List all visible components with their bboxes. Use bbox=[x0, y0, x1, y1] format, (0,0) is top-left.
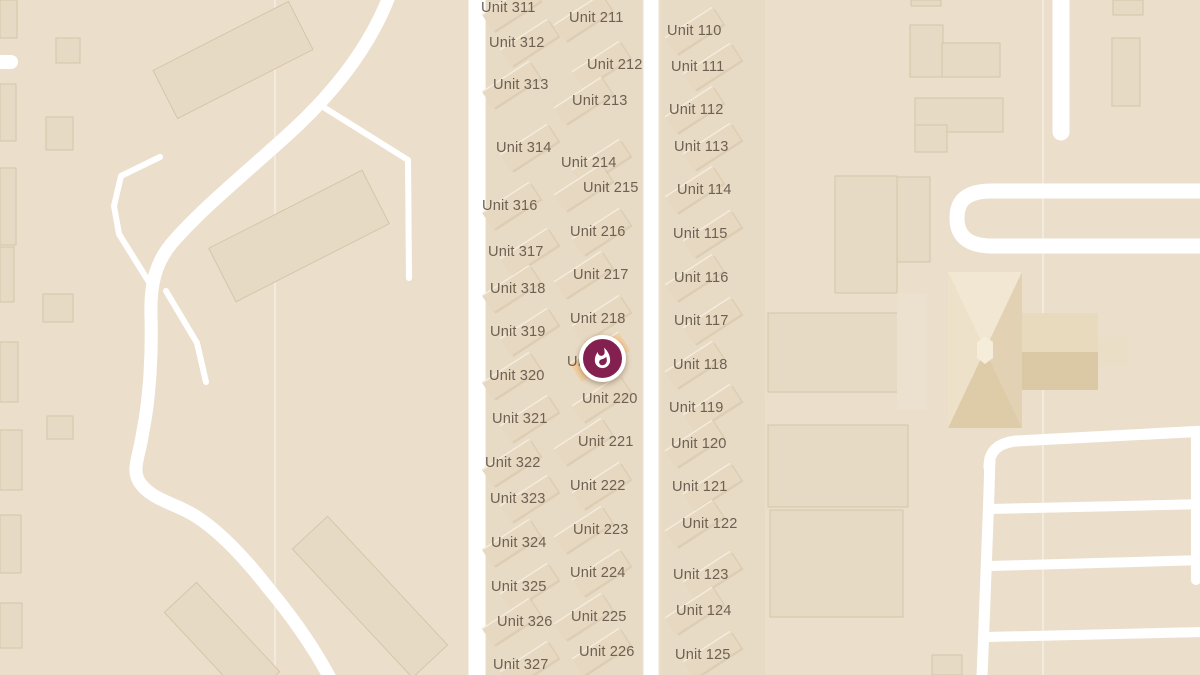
unit-label: Unit 118 bbox=[673, 357, 727, 373]
unit-label: Unit 121 bbox=[672, 479, 728, 495]
unit-label: Unit 224 bbox=[570, 565, 626, 581]
unit-label: Unit 115 bbox=[673, 226, 727, 242]
fire-marker[interactable] bbox=[579, 335, 626, 382]
unit-label: Unit 226 bbox=[579, 644, 635, 660]
unit-label: Unit 112 bbox=[669, 102, 723, 118]
unit-label: Unit 225 bbox=[571, 609, 627, 625]
unit-label: Unit 318 bbox=[490, 281, 546, 297]
unit-label: Unit 223 bbox=[573, 522, 629, 538]
unit-label: Unit 116 bbox=[674, 270, 728, 286]
unit-label: Unit 317 bbox=[488, 244, 544, 260]
unit-label: Unit 323 bbox=[490, 491, 546, 507]
unit-label: Unit 124 bbox=[676, 603, 732, 619]
unit-label: Unit 123 bbox=[673, 567, 729, 583]
unit-label: Unit 119 bbox=[669, 400, 723, 416]
unit-label: Unit 220 bbox=[582, 391, 638, 407]
unit-label: Unit 217 bbox=[573, 267, 629, 283]
unit-label: Unit 325 bbox=[491, 579, 547, 595]
unit-label: Unit 125 bbox=[675, 647, 731, 663]
unit-label: Unit 122 bbox=[682, 516, 738, 532]
unit-label: Unit 110 bbox=[667, 23, 721, 39]
unit-label: Unit 312 bbox=[489, 35, 545, 51]
unit-label: Unit 111 bbox=[671, 59, 724, 75]
unit-label: Unit 218 bbox=[570, 311, 626, 327]
unit-label: Unit 215 bbox=[583, 180, 639, 196]
unit-label: Unit 320 bbox=[489, 368, 545, 384]
unit-label: Unit 222 bbox=[570, 478, 626, 494]
unit-label: Unit 326 bbox=[497, 614, 553, 630]
unit-label: Unit 216 bbox=[570, 224, 626, 240]
unit-label: Unit 313 bbox=[493, 77, 549, 93]
map-canvas[interactable]: Unit 311Unit 312Unit 313Unit 314Unit 316… bbox=[0, 0, 1200, 675]
unit-label: Unit 213 bbox=[572, 93, 628, 109]
unit-label: Unit 117 bbox=[674, 313, 728, 329]
unit-label: Unit 319 bbox=[490, 324, 546, 340]
unit-label: Unit 316 bbox=[482, 198, 538, 214]
unit-label: Unit 113 bbox=[674, 139, 728, 155]
unit-label: Unit 324 bbox=[491, 535, 547, 551]
unit-label: Unit 212 bbox=[587, 57, 643, 73]
unit-label: Unit 314 bbox=[496, 140, 552, 156]
unit-label: Unit 214 bbox=[561, 155, 617, 171]
unit-label: Unit 120 bbox=[671, 436, 727, 452]
unit-label: Unit 321 bbox=[492, 411, 548, 427]
unit-label: Unit 327 bbox=[493, 657, 549, 673]
unit-label: Unit 311 bbox=[481, 0, 535, 16]
unit-label: Unit 114 bbox=[677, 182, 731, 198]
unit-label: Unit 221 bbox=[578, 434, 634, 450]
fire-icon bbox=[591, 347, 614, 370]
unit-label: Unit 211 bbox=[569, 10, 623, 26]
unit-label: Unit 322 bbox=[485, 455, 541, 471]
